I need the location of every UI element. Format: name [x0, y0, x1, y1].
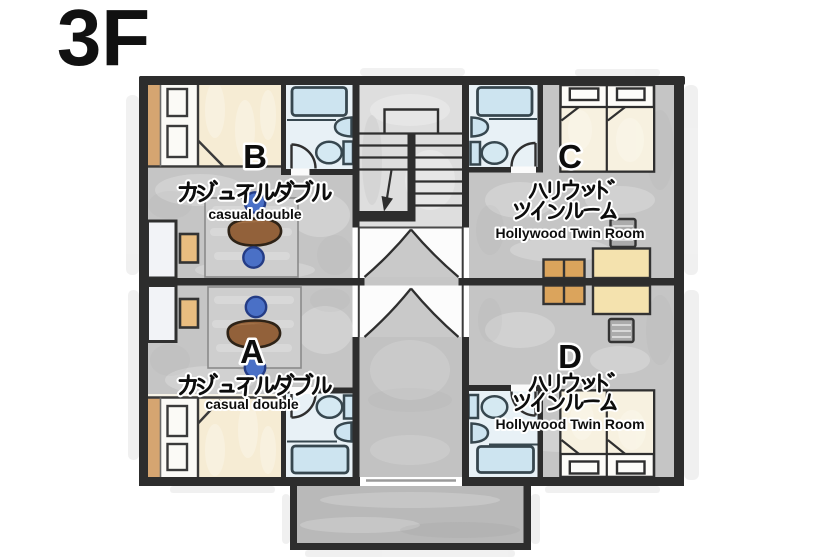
svg-text:3F: 3F	[57, 0, 150, 82]
svg-text:A: A	[240, 333, 264, 370]
svg-text:Hollywood Twin Room: Hollywood Twin Room	[495, 225, 644, 241]
svg-text:casual double: casual double	[205, 396, 299, 412]
svg-text:D: D	[558, 338, 582, 375]
svg-text:casual double: casual double	[208, 206, 302, 222]
svg-text:B: B	[243, 138, 267, 175]
svg-text:C: C	[558, 138, 582, 175]
svg-text:Hollywood Twin Room: Hollywood Twin Room	[495, 416, 644, 432]
